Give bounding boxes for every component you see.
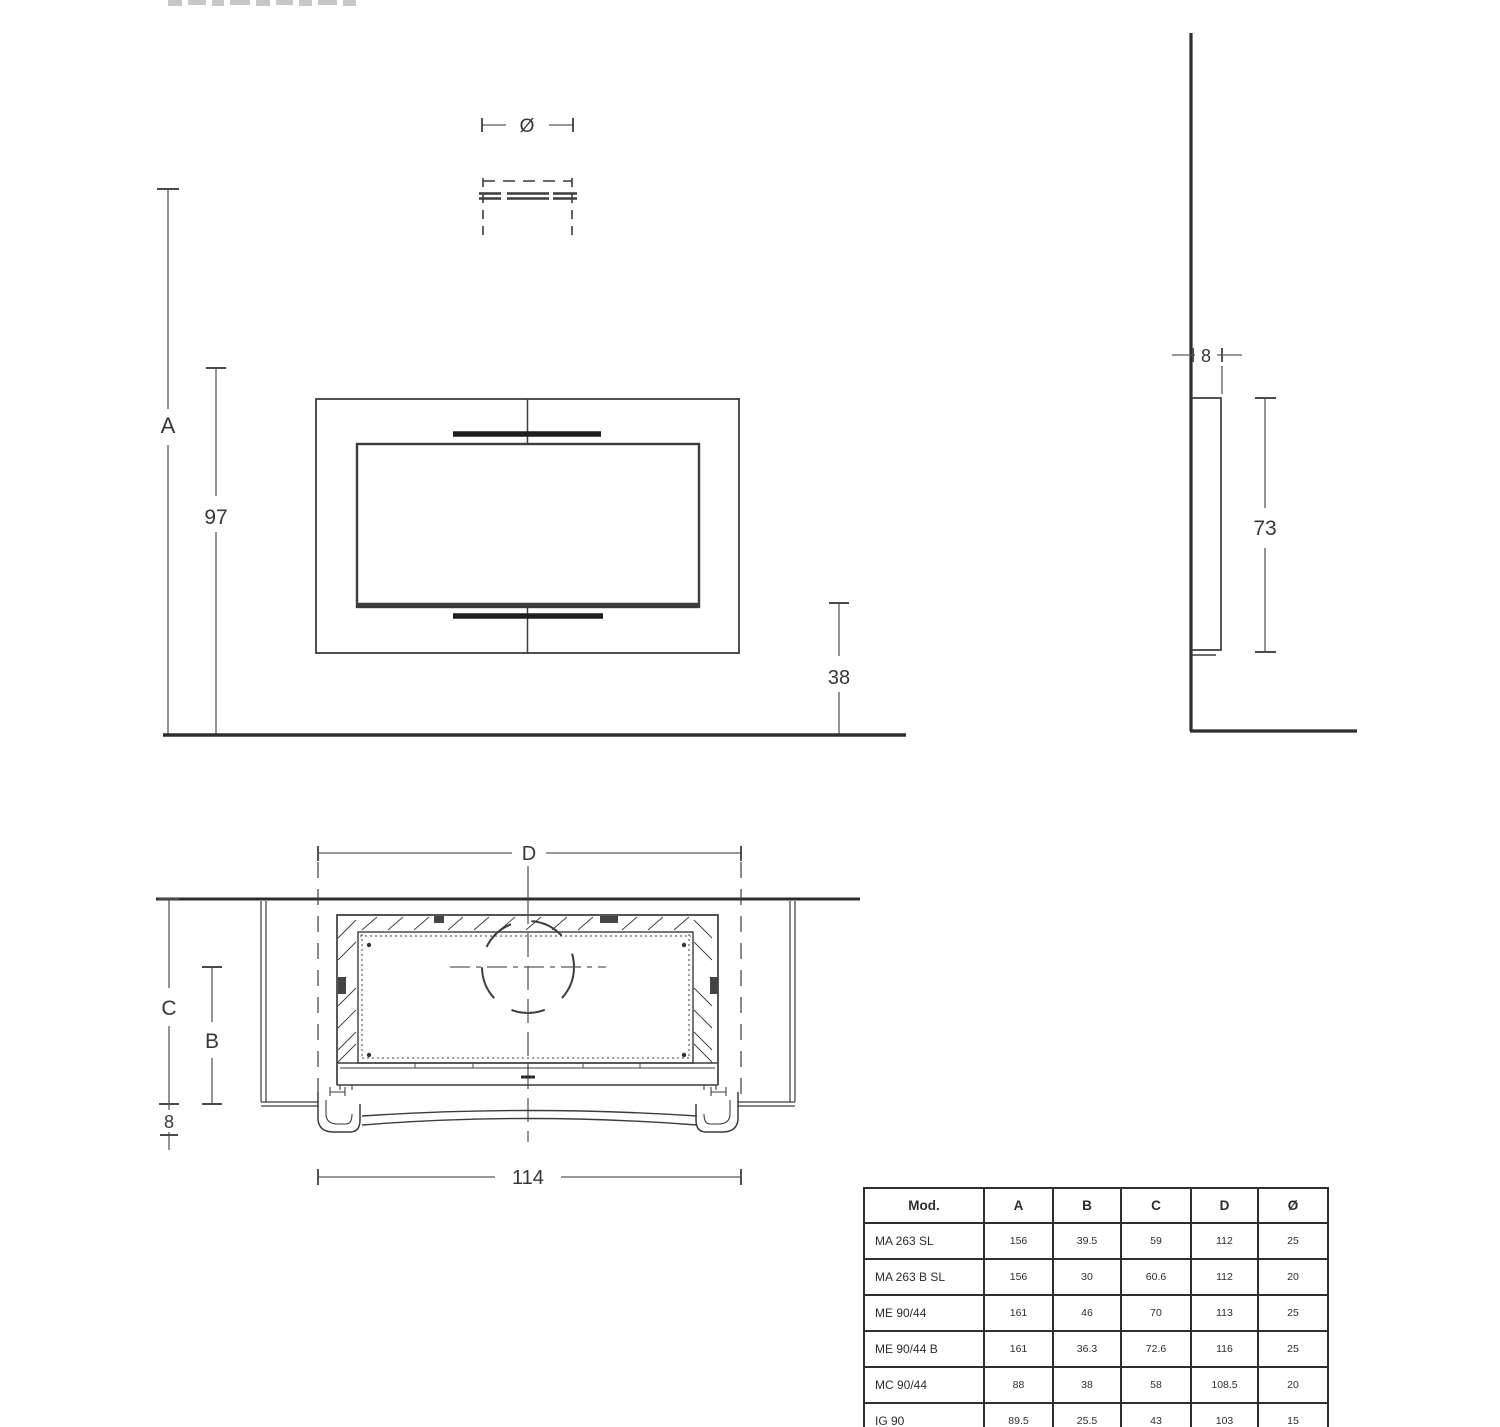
dimension-73: 73 [1253,398,1276,652]
dimension-value-cell: 108.5 [1191,1367,1258,1403]
dimension-value-cell: 88 [984,1367,1053,1403]
table-row: MA 263 B SL1563060.611220 [864,1259,1328,1295]
curved-front-glass [362,1111,697,1126]
dimension-8-plan-label: 8 [164,1112,174,1132]
header-diameter: Ø [1258,1188,1328,1223]
dimension-value-cell: 15 [1258,1403,1328,1427]
dimension-97: 97 [204,368,227,735]
table-row: MC 90/44883858108.520 [864,1367,1328,1403]
side-body-outline [1191,398,1221,655]
dimension-value-cell: 59 [1121,1223,1191,1259]
dimension-value-cell: 113 [1191,1295,1258,1331]
header-mod: Mod. [864,1188,984,1223]
table-row: ME 90/44 B16136.372.611625 [864,1331,1328,1367]
dimension-a-label: A [161,413,176,438]
model-name-cell: MA 263 SL [864,1223,984,1259]
technical-drawing-page: Ø A [0,0,1500,1427]
model-name-cell: MC 90/44 [864,1367,984,1403]
wall-hatching [338,917,712,1062]
dimension-value-cell: 43 [1121,1403,1191,1427]
dimension-value-cell: 70 [1121,1295,1191,1331]
model-name-cell: ME 90/44 B [864,1331,984,1367]
flue-diameter-label: Ø [520,116,535,137]
flue-outlet-hidden-lines [479,178,577,242]
glass-opening [357,444,699,607]
front-face-outline [316,399,739,653]
side-view: 8 73 [1172,33,1357,731]
header-a: A [984,1188,1053,1223]
dimension-c: C [159,899,179,1104]
dimension-value-cell: 161 [984,1295,1053,1331]
dimension-114: 114 [318,1167,741,1189]
flue-circle [450,866,606,1142]
plan-view: D C B 8 [156,843,860,1189]
dimension-value-cell: 36.3 [1053,1331,1121,1367]
header-b: B [1053,1188,1121,1223]
dimension-d-label: D [522,843,536,865]
dimension-value-cell: 39.5 [1053,1223,1121,1259]
dimension-8-side: 8 [1172,346,1242,394]
table-row: MA 263 SL15639.55911225 [864,1223,1328,1259]
dimension-38: 38 [828,603,850,735]
table-header: Mod. A B C D Ø [864,1188,1328,1223]
dimension-c-label: C [161,997,176,1020]
model-name-cell: ME 90/44 [864,1295,984,1331]
corner-dots [367,943,686,1057]
dimension-value-cell: 112 [1191,1223,1258,1259]
left-bracket [318,1085,360,1132]
dimension-value-cell: 72.6 [1121,1331,1191,1367]
dimension-value-cell: 46 [1053,1295,1121,1331]
right-bracket [696,1085,738,1132]
dimension-value-cell: 156 [984,1259,1053,1295]
dimension-value-cell: 60.6 [1121,1259,1191,1295]
header-d: D [1191,1188,1258,1223]
dimension-value-cell: 103 [1191,1403,1258,1427]
firebox-inner [358,932,693,1063]
dimension-value-cell: 25 [1258,1295,1328,1331]
dimension-8-side-label: 8 [1201,346,1211,366]
dimension-73-label: 73 [1253,517,1276,540]
dimension-d: D [318,843,741,865]
dimension-value-cell: 30 [1053,1259,1121,1295]
dimension-value-cell: 161 [984,1331,1053,1367]
table-row: IG 9089.525.54310315 [864,1403,1328,1427]
table-body: MA 263 SL15639.55911225MA 263 B SL156306… [864,1223,1328,1427]
dimension-value-cell: 112 [1191,1259,1258,1295]
dimension-value-cell: 25 [1258,1331,1328,1367]
front-view: Ø A [157,116,906,735]
dimension-8-plan: 8 [160,1104,178,1150]
dimension-38-label: 38 [828,667,850,689]
dimension-value-cell: 116 [1191,1331,1258,1367]
dimension-value-cell: 89.5 [984,1403,1053,1427]
dimension-value-cell: 25.5 [1053,1403,1121,1427]
dimension-a: A [157,189,179,735]
extension-lines-dashed [318,862,741,1096]
dimension-value-cell: 156 [984,1223,1053,1259]
flue-diameter-dimension: Ø [482,116,573,137]
dimension-b-label: B [205,1030,219,1053]
header-c: C [1121,1188,1191,1223]
model-dimensions-table: Mod. A B C D Ø MA 263 SL15639.55911225MA… [863,1187,1329,1427]
model-name-cell: MA 263 B SL [864,1259,984,1295]
dimension-value-cell: 20 [1258,1367,1328,1403]
dimension-114-label: 114 [512,1167,544,1189]
page-edge-artifact [168,0,356,6]
dimension-97-label: 97 [204,506,227,529]
dimension-value-cell: 58 [1121,1367,1191,1403]
model-name-cell: IG 90 [864,1403,984,1427]
dimension-value-cell: 20 [1258,1259,1328,1295]
table-header-row: Mod. A B C D Ø [864,1188,1328,1223]
dimension-value-cell: 25 [1258,1223,1328,1259]
dimension-value-cell: 38 [1053,1367,1121,1403]
dimension-b: B [202,967,222,1104]
table-row: ME 90/44161467011325 [864,1295,1328,1331]
